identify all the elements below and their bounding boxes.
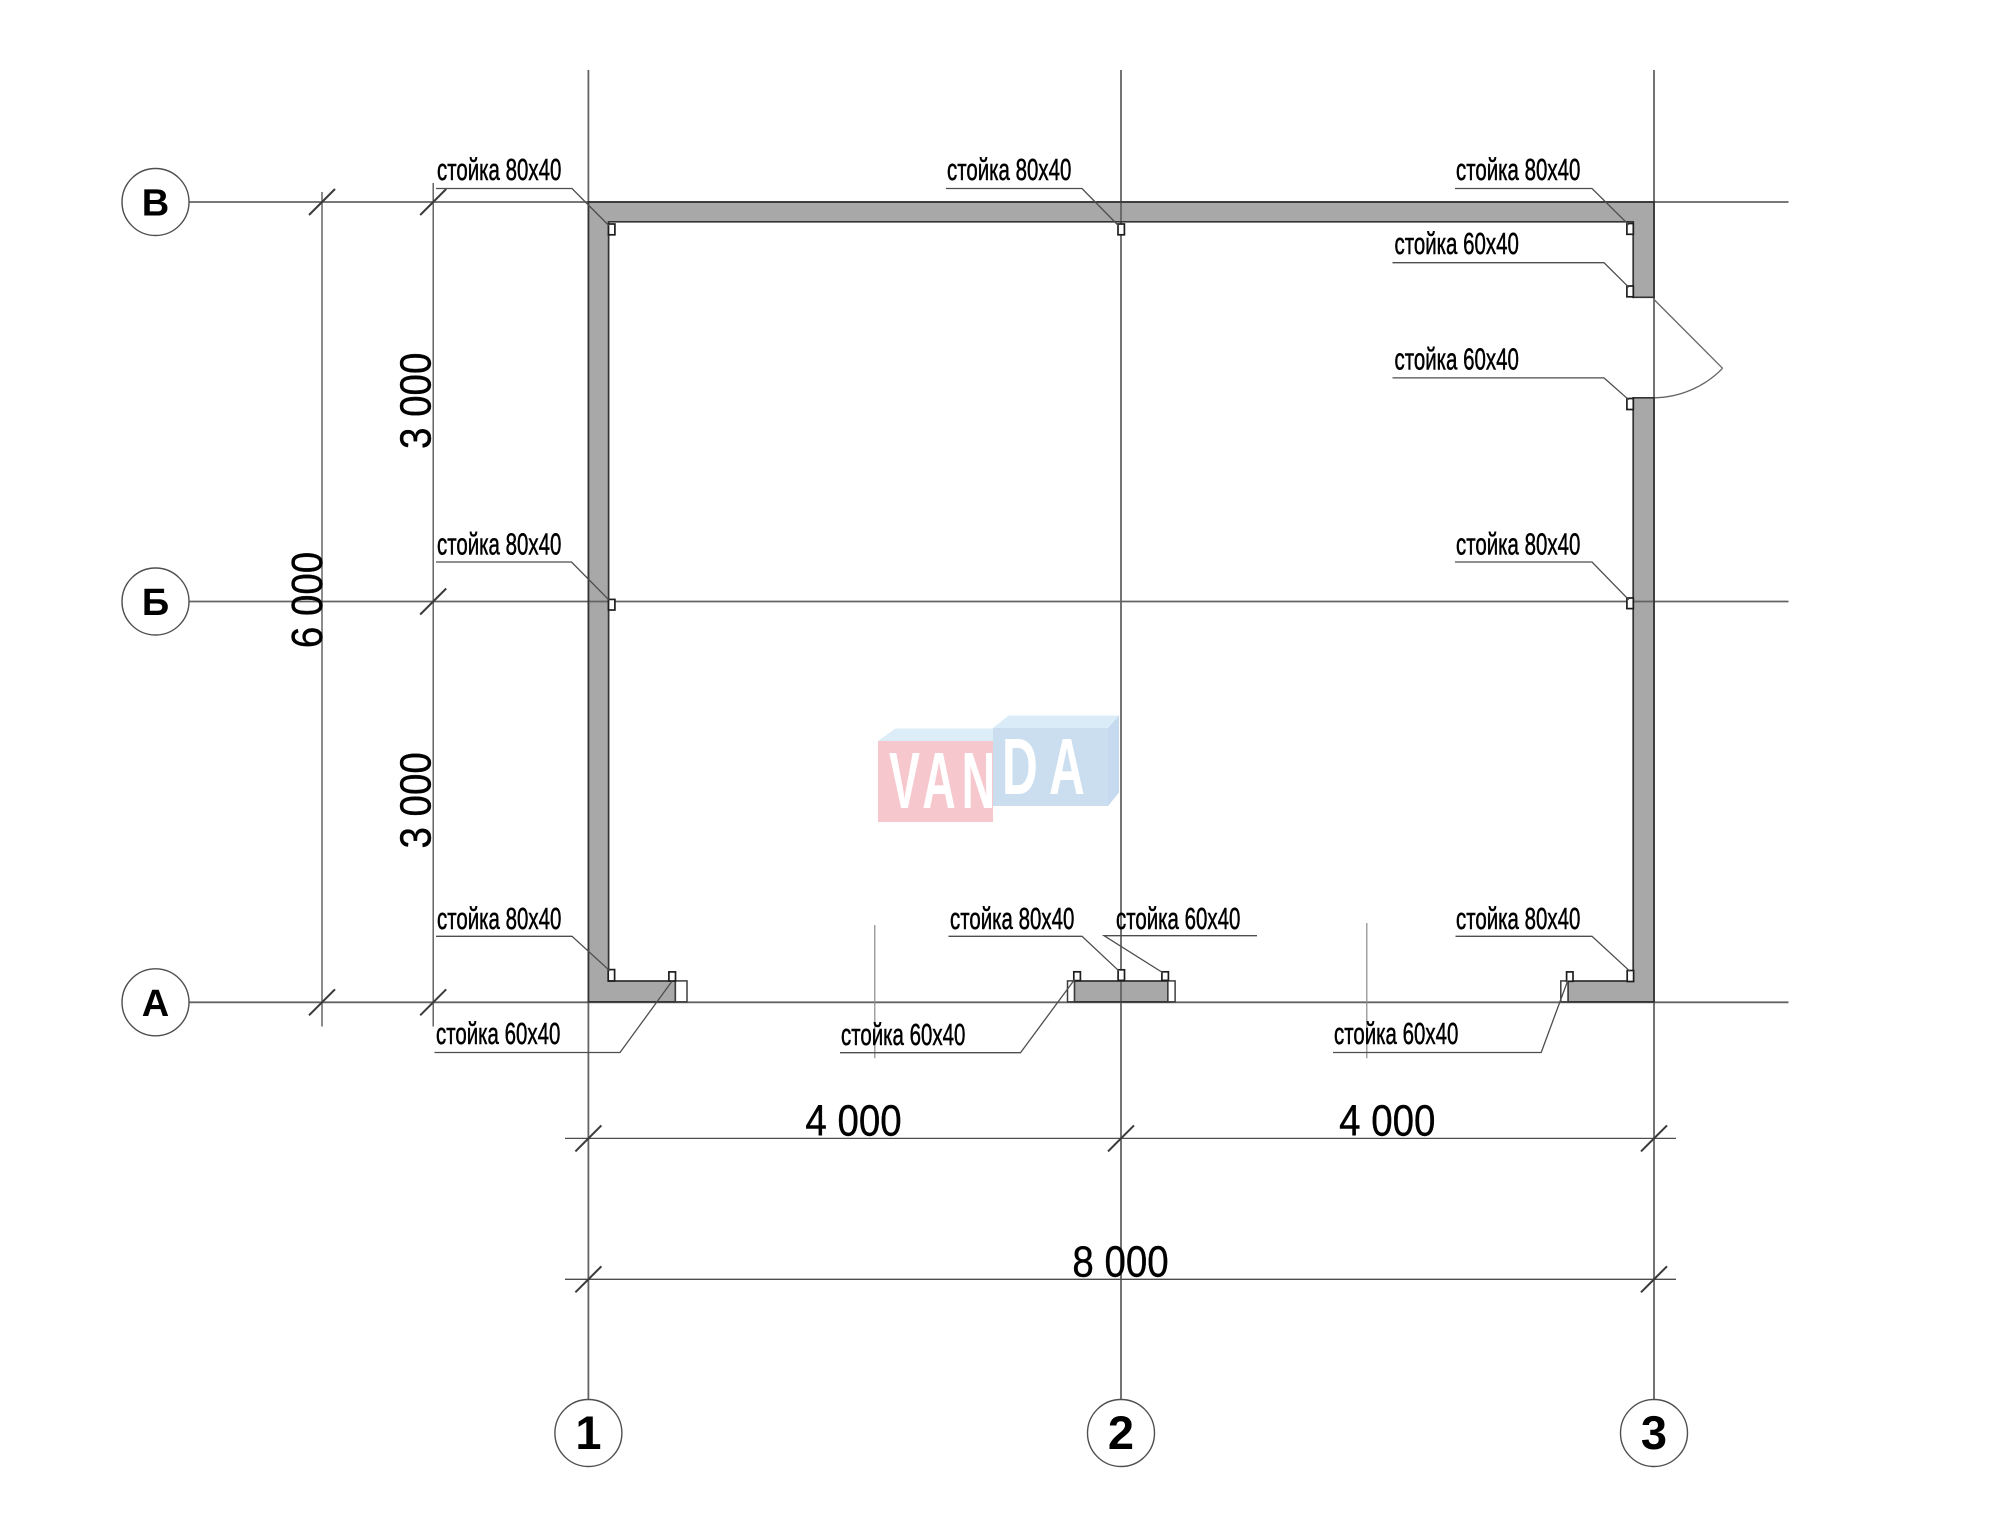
svg-text:стойка 60х40: стойка 60х40 <box>1395 341 1519 376</box>
svg-text:стойка 80х40: стойка 80х40 <box>950 901 1074 936</box>
svg-text:стойка 80х40: стойка 80х40 <box>947 152 1071 187</box>
svg-text:4 000: 4 000 <box>1339 1096 1435 1145</box>
svg-text:стойка 60х40: стойка 60х40 <box>841 1017 965 1052</box>
svg-text:VAN: VAN <box>889 736 1001 825</box>
svg-text:стойка 80х40: стойка 80х40 <box>437 901 561 936</box>
svg-text:3 000: 3 000 <box>391 752 440 848</box>
svg-text:стойка 80х40: стойка 80х40 <box>1456 526 1580 561</box>
svg-text:стойка 60х40: стойка 60х40 <box>1116 901 1240 936</box>
svg-text:А: А <box>142 983 169 1025</box>
svg-text:стойка 80х40: стойка 80х40 <box>1456 152 1580 187</box>
svg-text:стойка 80х40: стойка 80х40 <box>437 526 561 561</box>
svg-text:6 000: 6 000 <box>283 552 332 648</box>
svg-text:стойка 60х40: стойка 60х40 <box>1395 226 1519 261</box>
svg-text:3 000: 3 000 <box>391 353 440 449</box>
svg-text:8 000: 8 000 <box>1072 1237 1168 1286</box>
svg-text:стойка 80х40: стойка 80х40 <box>1456 901 1580 936</box>
svg-text:стойка 60х40: стойка 60х40 <box>436 1016 560 1051</box>
svg-text:2: 2 <box>1108 1406 1134 1459</box>
svg-text:Б: Б <box>142 582 169 624</box>
svg-text:стойка 60х40: стойка 60х40 <box>1334 1016 1458 1051</box>
svg-text:стойка 80х40: стойка 80х40 <box>437 152 561 187</box>
svg-text:4 000: 4 000 <box>805 1096 901 1145</box>
svg-text:3: 3 <box>1641 1406 1667 1459</box>
svg-text:В: В <box>142 182 169 224</box>
svg-text:1: 1 <box>575 1406 601 1459</box>
svg-text:DA: DA <box>1002 723 1096 812</box>
